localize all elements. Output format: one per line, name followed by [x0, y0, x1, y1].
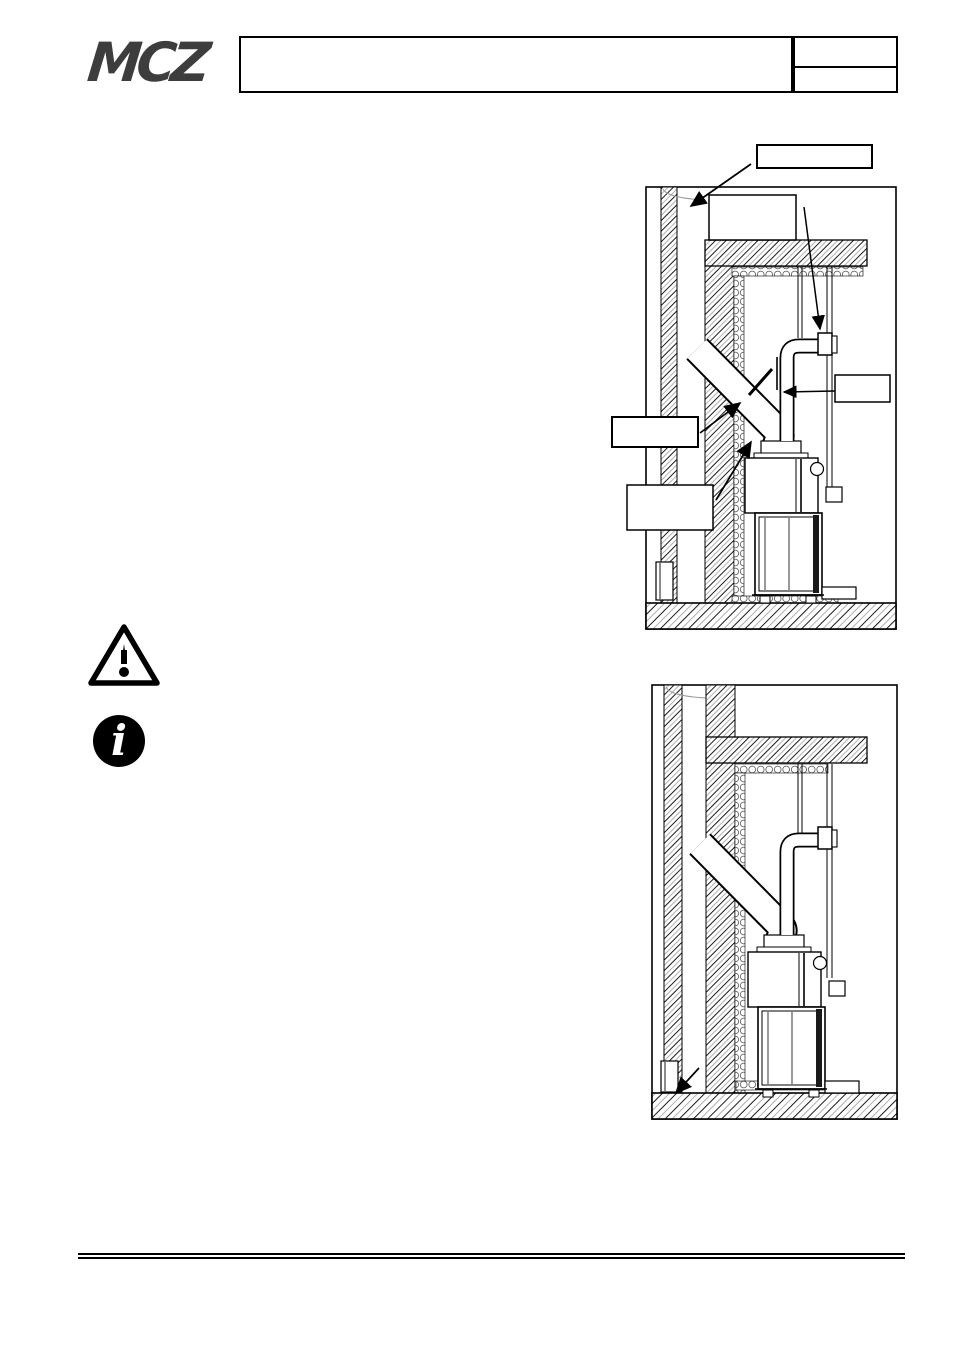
insulation-under-beam	[735, 764, 828, 773]
insulation-pillar	[734, 276, 744, 603]
hood-beam	[705, 240, 867, 266]
callout-box-chimney	[757, 145, 872, 168]
insulation-pillar	[735, 773, 745, 1093]
installation-diagrams	[0, 0, 954, 1350]
air-vent-box	[656, 562, 673, 600]
hood-pillar	[705, 266, 734, 603]
callout-box-hood	[709, 195, 796, 240]
floor-section	[652, 1093, 897, 1119]
figure-bottom	[652, 685, 897, 1119]
footer-rule-top	[78, 1253, 905, 1255]
wall-sleeve	[818, 333, 832, 355]
air-vent-box	[661, 1061, 678, 1092]
floor-section	[646, 603, 896, 629]
wall-section	[661, 187, 677, 603]
wall-section	[664, 685, 682, 1093]
callout-box-left-lower	[627, 485, 713, 530]
hood-beam	[706, 737, 867, 763]
callout-box-right	[835, 375, 890, 402]
wall-sleeve-flange	[832, 830, 837, 847]
figure-top	[612, 145, 896, 629]
callout-box-left-upper	[612, 417, 698, 447]
wall-sleeve-flange	[832, 336, 837, 353]
footer-rule-bottom	[78, 1257, 905, 1259]
arrow-to-damper	[784, 391, 835, 392]
manual-page: MCZ i	[0, 0, 954, 1350]
wall-sleeve	[818, 827, 832, 849]
